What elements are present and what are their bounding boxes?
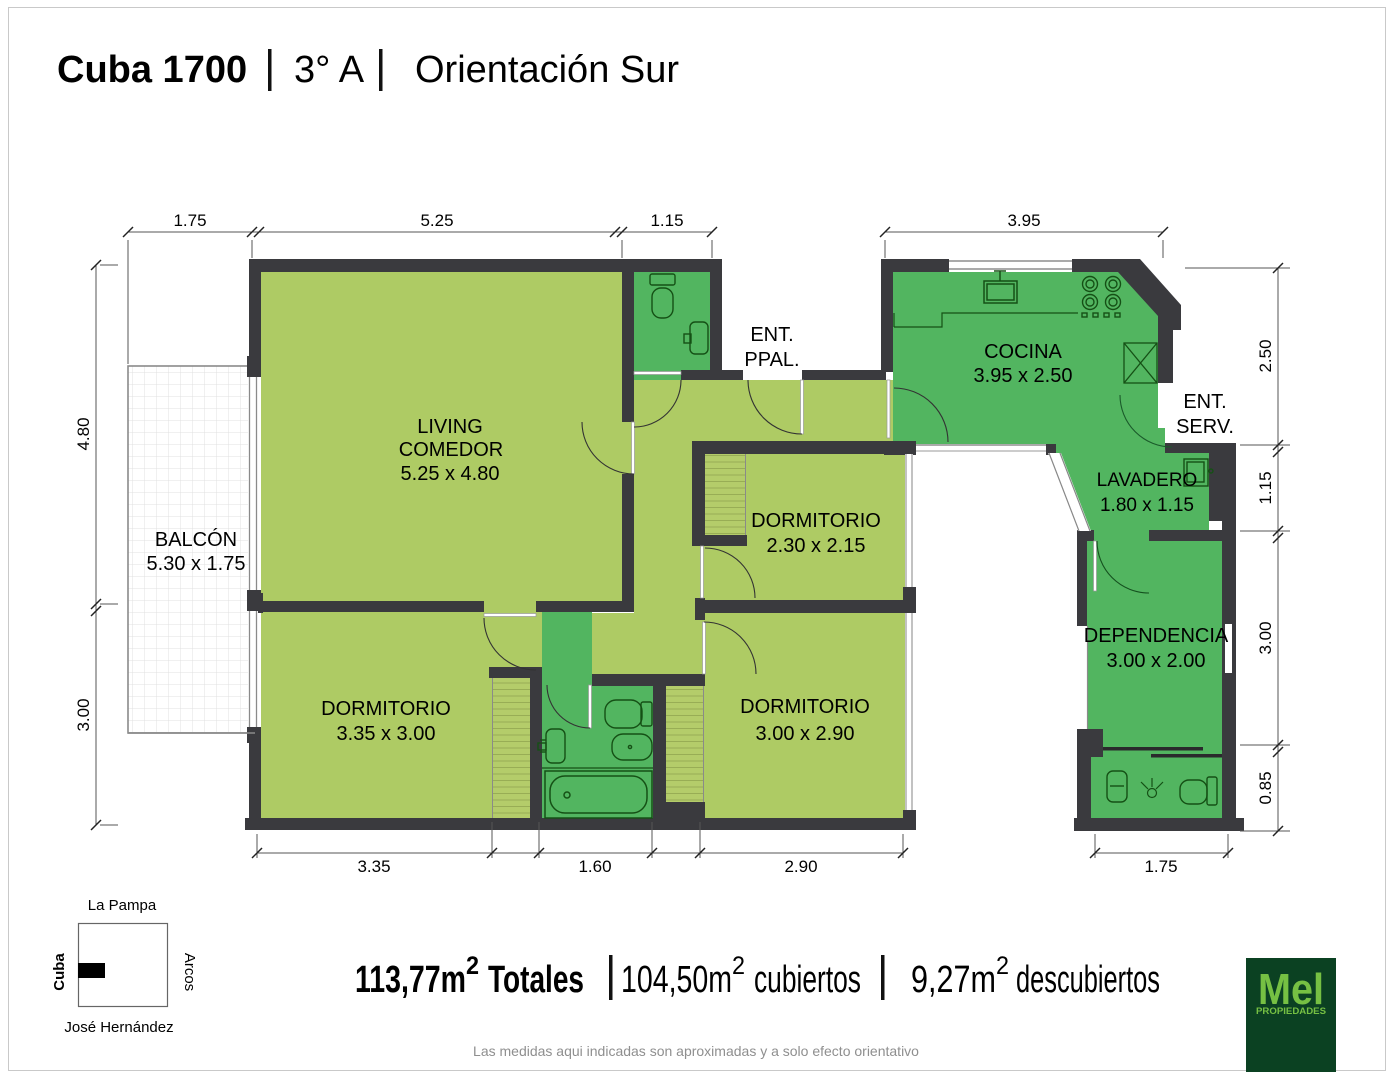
svg-text:PPAL.: PPAL. <box>744 349 799 371</box>
svg-text:3.95: 3.95 <box>1007 211 1040 230</box>
svg-text:5.25: 5.25 <box>420 211 453 230</box>
svg-text:José Hernández: José Hernández <box>64 1019 173 1036</box>
svg-text:5.30 x 1.75: 5.30 x 1.75 <box>147 553 246 575</box>
svg-text:ENT.: ENT. <box>1183 391 1226 413</box>
svg-text:1.80 x 1.15: 1.80 x 1.15 <box>1100 495 1194 516</box>
svg-text:3.00 x 2.00: 3.00 x 2.00 <box>1107 650 1206 672</box>
svg-text:Cuba 1700: Cuba 1700 <box>57 49 247 91</box>
svg-text:2: 2 <box>732 952 745 980</box>
svg-text:LIVING: LIVING <box>417 416 483 438</box>
svg-text:3.00: 3.00 <box>1256 621 1275 654</box>
svg-text:3.00: 3.00 <box>74 698 93 731</box>
svg-text:Arcos: Arcos <box>181 953 198 991</box>
svg-text:DORMITORIO: DORMITORIO <box>321 698 451 720</box>
svg-text:1.15: 1.15 <box>1256 471 1275 504</box>
svg-text:Cuba: Cuba <box>51 953 68 991</box>
svg-text:113,77m: 113,77m <box>355 959 466 1001</box>
svg-text:2: 2 <box>996 952 1009 980</box>
svg-text:3.00 x 2.90: 3.00 x 2.90 <box>756 723 855 745</box>
svg-text:La Pampa: La Pampa <box>88 897 157 914</box>
svg-text:0.85: 0.85 <box>1256 771 1275 804</box>
svg-text:2.30 x 2.15: 2.30 x 2.15 <box>767 535 866 557</box>
svg-text:DEPENDENCIA: DEPENDENCIA <box>1084 625 1229 647</box>
svg-text:2.90: 2.90 <box>784 857 817 876</box>
svg-text:2: 2 <box>466 952 479 980</box>
svg-text:DORMITORIO: DORMITORIO <box>740 696 870 718</box>
svg-text:5.25 x 4.80: 5.25 x 4.80 <box>401 463 500 485</box>
svg-text:1.60: 1.60 <box>578 857 611 876</box>
svg-text:Totales: Totales <box>488 959 584 1001</box>
svg-text:LAVADERO: LAVADERO <box>1097 470 1198 491</box>
svg-text:1.75: 1.75 <box>173 211 206 230</box>
svg-text:PROPIEDADES: PROPIEDADES <box>1256 1006 1326 1017</box>
svg-text:3.35 x 3.00: 3.35 x 3.00 <box>337 723 436 745</box>
svg-text:3.35: 3.35 <box>357 857 390 876</box>
svg-text:COCINA: COCINA <box>984 341 1062 363</box>
svg-text:3.95 x 2.50: 3.95 x 2.50 <box>974 365 1073 387</box>
svg-text:104,50m: 104,50m <box>621 959 732 1001</box>
svg-text:DORMITORIO: DORMITORIO <box>751 510 881 532</box>
svg-text:1.15: 1.15 <box>650 211 683 230</box>
svg-text:1.75: 1.75 <box>1144 857 1177 876</box>
svg-text:BALCÓN: BALCÓN <box>155 528 237 551</box>
svg-text:Orientación Sur: Orientación Sur <box>415 49 679 91</box>
svg-text:9,27m: 9,27m <box>911 959 996 1001</box>
svg-text:descubiertos: descubiertos <box>1016 959 1160 1001</box>
svg-text:4.80: 4.80 <box>74 417 93 450</box>
svg-text:2.50: 2.50 <box>1256 339 1275 372</box>
svg-text:COMEDOR: COMEDOR <box>399 439 503 461</box>
svg-text:cubiertos: cubiertos <box>754 959 861 1001</box>
svg-text:SERV.: SERV. <box>1176 416 1234 438</box>
svg-text:3° A: 3° A <box>294 49 365 91</box>
svg-text:ENT.: ENT. <box>750 324 793 346</box>
svg-text:Las medidas aqui indicadas son: Las medidas aqui indicadas son aproximad… <box>473 1043 919 1059</box>
